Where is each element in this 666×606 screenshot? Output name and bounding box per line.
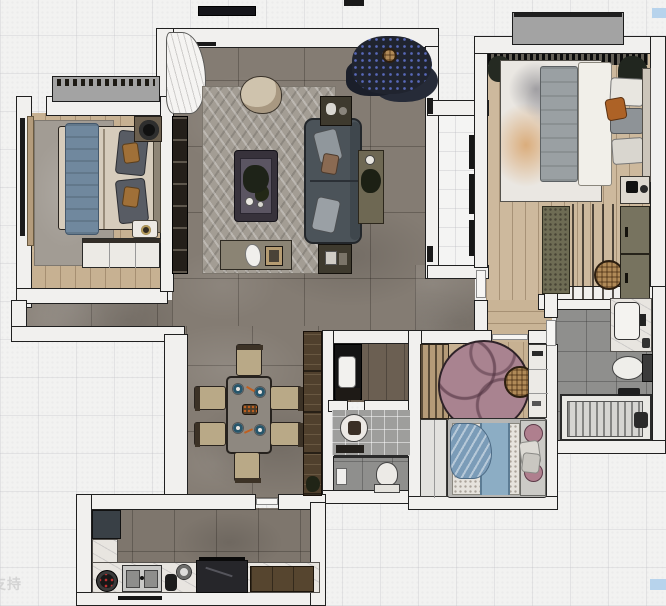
double-sink[interactable] — [122, 565, 162, 592]
master-bed[interactable] — [540, 62, 650, 188]
dining-chair[interactable] — [194, 386, 226, 410]
place-setting — [254, 424, 266, 436]
shelf-line — [529, 369, 548, 370]
dining-chair[interactable] — [234, 452, 260, 482]
watermark: 支持 — [0, 574, 22, 594]
kitchen-cabinet[interactable] — [250, 566, 314, 592]
tub-faucet — [618, 388, 640, 396]
chair-back — [195, 387, 200, 411]
round-basin[interactable] — [340, 414, 368, 442]
place-setting — [232, 383, 244, 395]
picture-frame — [265, 246, 283, 266]
tableware — [257, 201, 264, 208]
faucet — [640, 314, 646, 326]
counter-items — [642, 338, 650, 348]
cabinet-plant — [306, 476, 320, 492]
shelf-items — [532, 351, 543, 356]
sink-faucet — [140, 576, 144, 580]
sink-basin — [144, 570, 158, 588]
master-nightstand[interactable] — [620, 176, 650, 204]
accent-pillow — [122, 142, 141, 164]
chair-back — [237, 345, 263, 350]
pillow — [521, 452, 541, 474]
dining-chair[interactable] — [236, 344, 262, 376]
hall-left-floor — [25, 300, 172, 328]
tub-fixture — [634, 412, 648, 428]
basin-items — [348, 421, 361, 435]
decor — [640, 185, 648, 193]
decor — [141, 225, 151, 235]
large-plant[interactable] — [352, 36, 432, 94]
kids-shelf-cabinet[interactable] — [528, 344, 547, 418]
wall — [544, 440, 666, 454]
dining-table[interactable] — [226, 376, 272, 454]
bath-mat — [336, 445, 364, 453]
handle — [625, 227, 628, 237]
washbasin-sink[interactable] — [614, 302, 640, 340]
chair-back — [235, 478, 261, 483]
decor — [326, 103, 336, 115]
sink-basin — [126, 570, 140, 588]
figurine — [245, 244, 261, 267]
wall — [322, 330, 422, 344]
wall — [76, 592, 326, 606]
bathtub[interactable] — [560, 394, 652, 441]
sofa-pillow — [311, 196, 342, 234]
shelf-items — [532, 401, 541, 406]
wall — [652, 286, 666, 454]
duvet-fold — [103, 129, 105, 229]
blanket — [540, 66, 578, 182]
window-lightwell — [469, 220, 474, 256]
toilet-tank — [642, 354, 653, 382]
wall — [16, 288, 168, 304]
coffee-table[interactable] — [234, 150, 278, 222]
decor — [626, 181, 638, 193]
shelf-line — [529, 393, 548, 394]
sofa[interactable] — [304, 118, 362, 244]
toilet[interactable] — [376, 462, 398, 486]
accent-pillow — [122, 186, 141, 208]
door-threshold-kitchen — [256, 498, 278, 505]
console-table[interactable] — [358, 150, 384, 224]
place-setting — [232, 422, 244, 434]
chopsticks — [244, 428, 253, 434]
wall — [408, 496, 558, 510]
window-lightwell — [469, 174, 474, 214]
nightstand[interactable] — [134, 116, 162, 142]
kids-wardrobe[interactable] — [420, 419, 447, 497]
chair-back — [195, 423, 200, 447]
wardrobe[interactable] — [82, 238, 160, 268]
wall-sconce — [427, 98, 433, 114]
cooktop[interactable] — [196, 560, 248, 593]
kettle[interactable] — [165, 574, 177, 591]
pot[interactable] — [176, 564, 192, 580]
dining-chair[interactable] — [270, 422, 302, 446]
place-setting — [254, 386, 266, 398]
curtain-strip — [27, 116, 34, 246]
door-threshold-bathroom-right — [546, 320, 556, 346]
sofa-pillow — [320, 153, 339, 175]
headboard — [642, 68, 651, 182]
duvet — [578, 62, 612, 186]
shelf-box — [336, 468, 347, 485]
tableware — [245, 197, 254, 206]
roof-notch — [344, 0, 364, 6]
foot-bench[interactable] — [542, 206, 570, 294]
wardrobe-top-rail — [83, 239, 161, 243]
toilet-tank — [374, 484, 400, 493]
wall — [164, 334, 188, 502]
gas-burner[interactable] — [96, 570, 118, 592]
orange-pillow — [604, 96, 628, 121]
kitchen-window — [118, 596, 162, 600]
hood-bar — [199, 557, 245, 561]
side-table-south[interactable] — [318, 244, 352, 274]
shower-glass — [334, 455, 408, 458]
blue-throw — [65, 123, 99, 235]
console-plant — [361, 169, 381, 193]
door-line — [434, 420, 435, 498]
decor-bench[interactable] — [220, 240, 292, 270]
sideboard-cabinet[interactable] — [303, 331, 322, 496]
windowsill-plants — [57, 79, 155, 86]
wall — [322, 490, 422, 504]
door-threshold-kids — [492, 334, 528, 340]
wall-sconce — [427, 246, 433, 262]
wall — [474, 36, 488, 268]
chopsticks — [246, 386, 255, 392]
decor — [325, 251, 337, 265]
tray-nightstand[interactable] — [132, 220, 158, 238]
bathtub-slats — [567, 401, 643, 437]
marker-blue-top — [652, 8, 666, 18]
door-threshold-master — [476, 270, 486, 298]
decor — [339, 253, 347, 265]
table-plant — [243, 165, 269, 193]
sofa-seam — [310, 180, 358, 182]
side-table-north[interactable] — [320, 96, 352, 126]
balcony-edge — [514, 13, 622, 17]
fridge[interactable] — [92, 510, 121, 539]
bay-window — [52, 76, 160, 102]
door-line — [109, 243, 110, 268]
vanity-sink[interactable] — [338, 356, 356, 388]
decor — [339, 107, 347, 115]
handle — [625, 273, 628, 283]
cooktop-mark — [205, 567, 232, 578]
wall — [425, 46, 439, 279]
kids-bed[interactable] — [447, 418, 547, 498]
floorplan-canvas[interactable]: 支持 — [0, 0, 666, 606]
door-line — [135, 243, 136, 268]
center-dish — [242, 404, 258, 415]
ac-unit-top — [198, 6, 256, 16]
master-wardrobe[interactable] — [620, 206, 650, 300]
pillow — [611, 137, 645, 165]
plant-pot — [382, 48, 397, 63]
console-cup — [365, 155, 375, 165]
wall — [76, 494, 256, 510]
window-lightwell — [469, 135, 474, 169]
dining-chair[interactable] — [270, 386, 302, 410]
armchair[interactable] — [240, 76, 282, 114]
vanity-items — [336, 388, 360, 400]
wall — [76, 494, 92, 606]
wall — [11, 326, 185, 342]
toilet[interactable] — [612, 356, 644, 380]
marker-blue-bottom — [650, 579, 666, 590]
dining-chair[interactable] — [194, 422, 226, 446]
wall — [650, 36, 666, 308]
fan — [139, 120, 159, 140]
door-line — [621, 253, 651, 255]
tv-console[interactable] — [172, 116, 188, 274]
window-bedroom-left — [20, 118, 25, 236]
